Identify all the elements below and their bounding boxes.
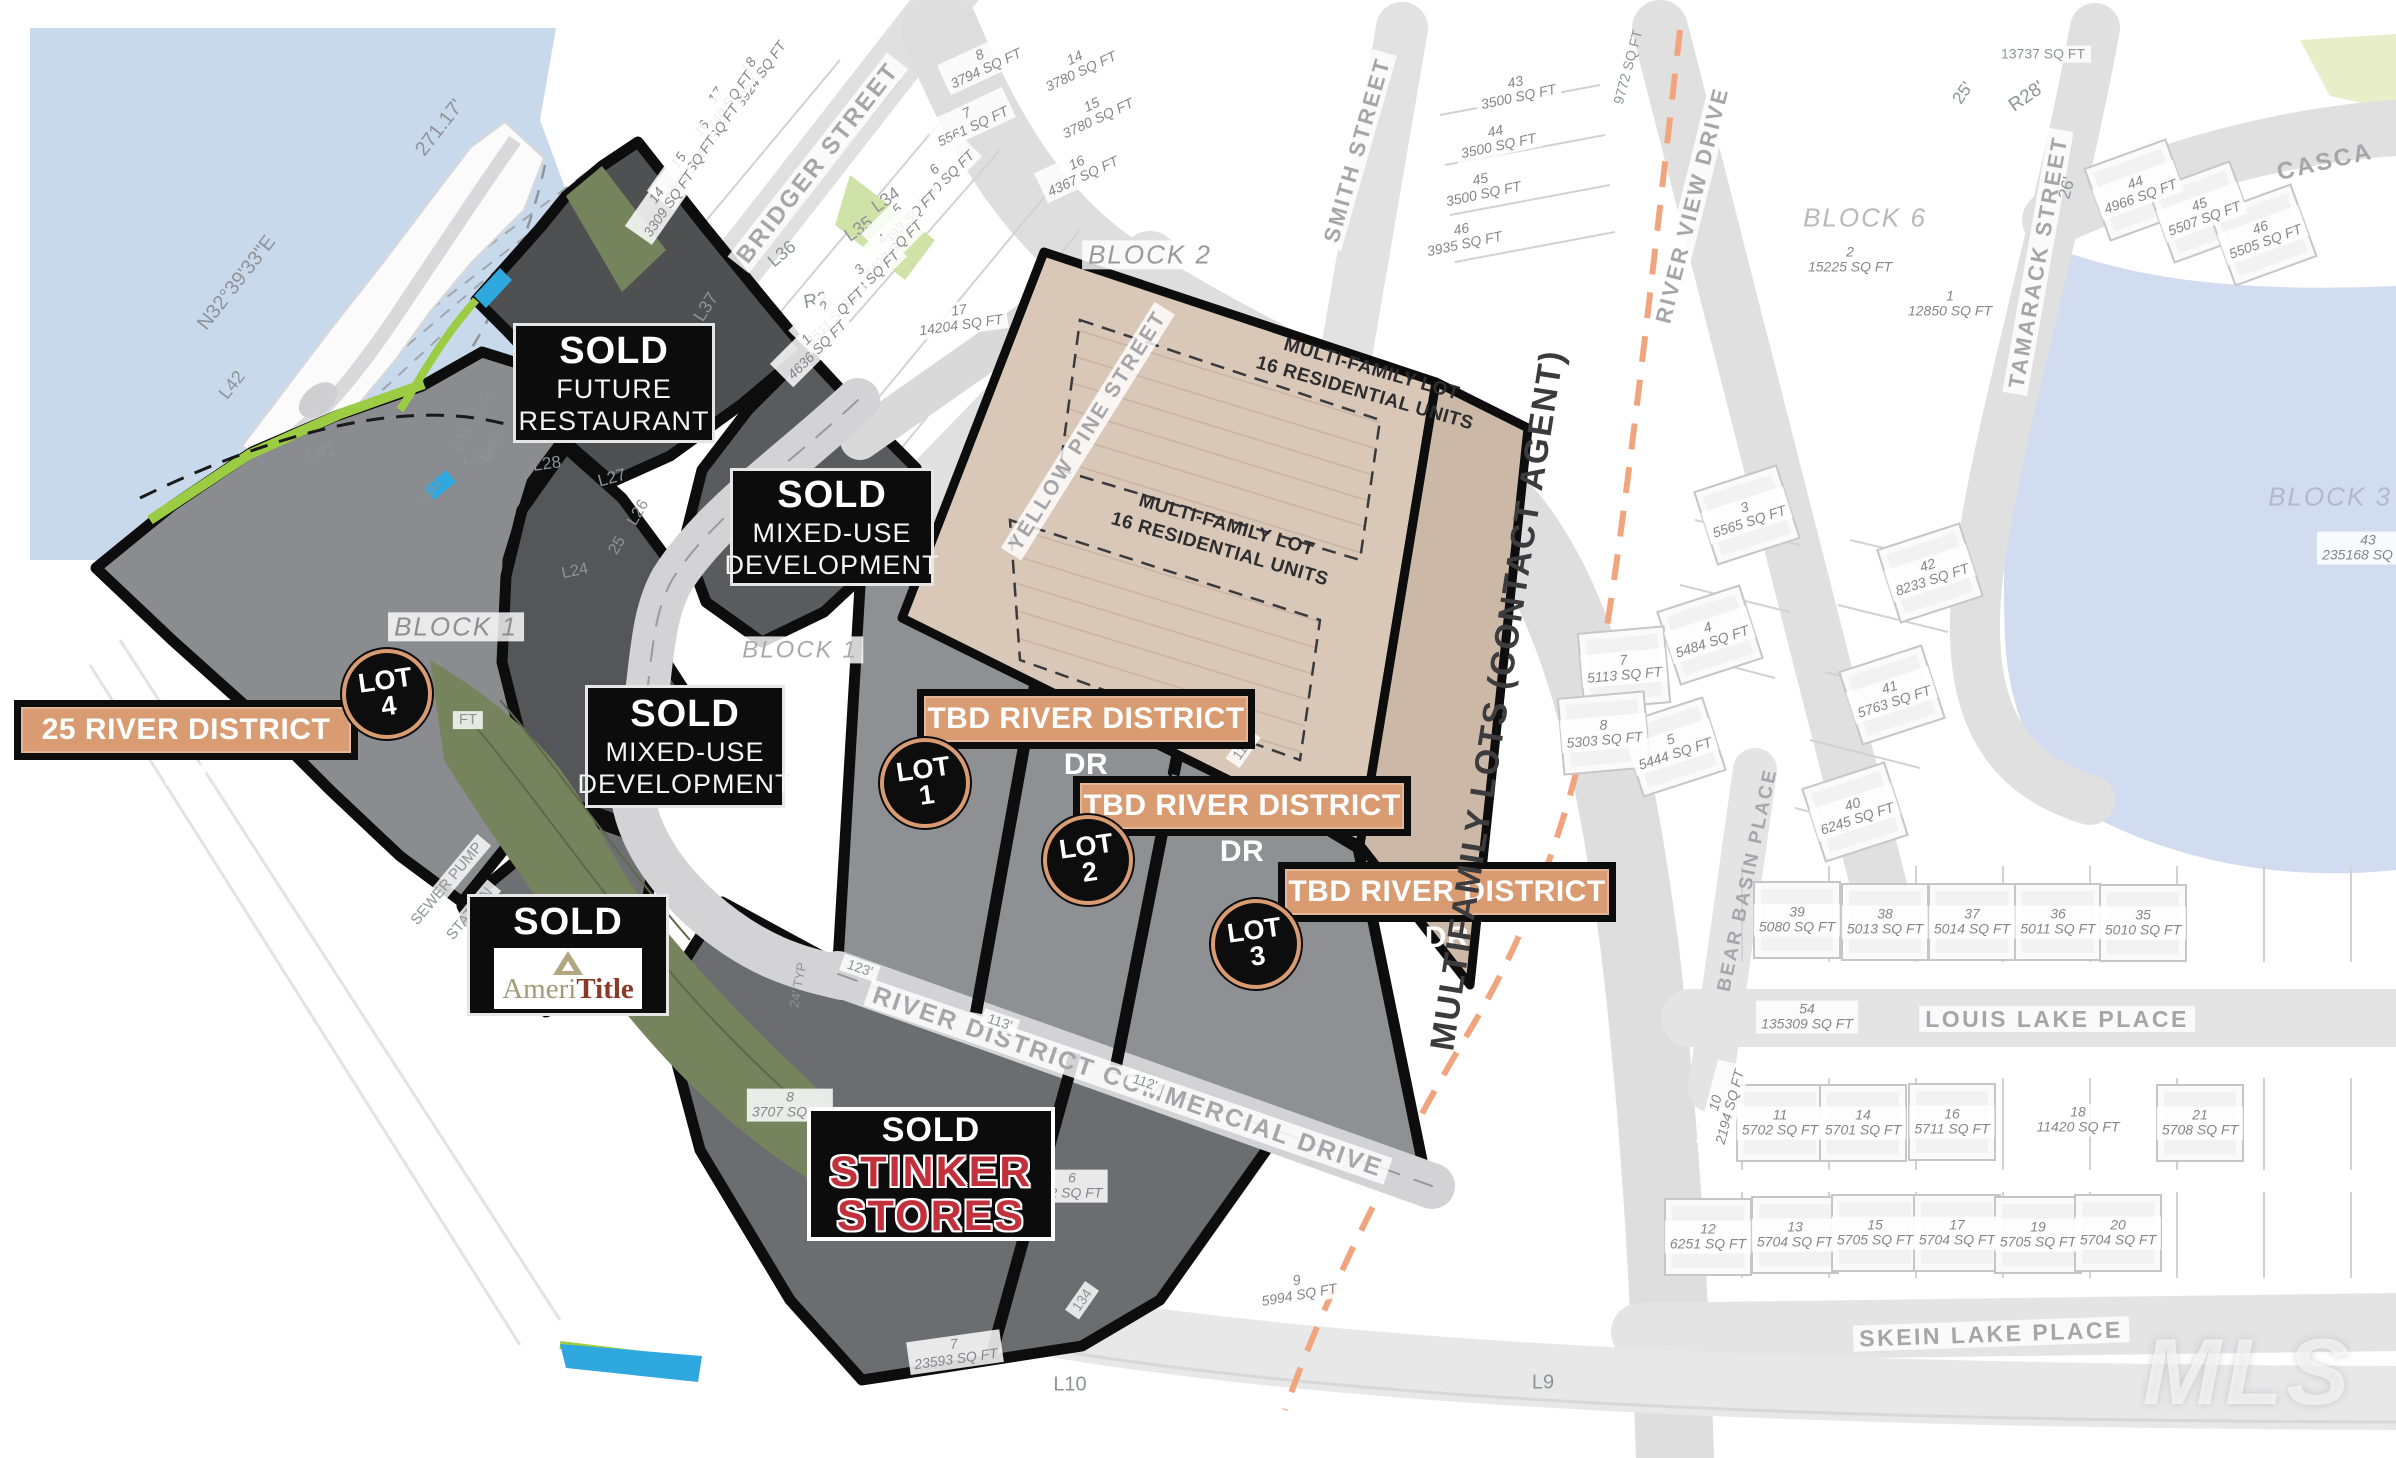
map-drawing bbox=[0, 0, 2396, 1458]
plat-map-canvas: BRIDGER STREETYELLOW PINE STREETSMITH ST… bbox=[0, 0, 2396, 1458]
corner-green bbox=[2300, 34, 2396, 110]
